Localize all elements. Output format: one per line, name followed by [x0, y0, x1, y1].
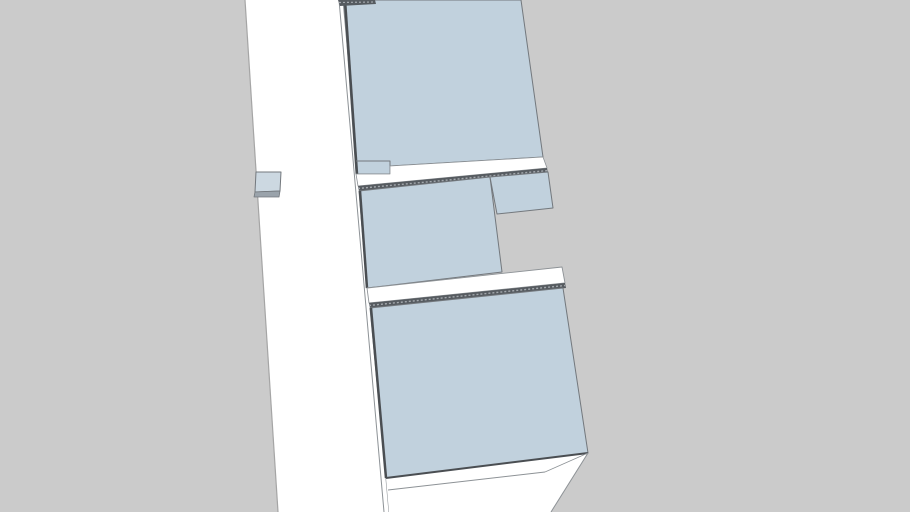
middle-glass-panel[interactable] — [359, 177, 502, 288]
middle-glass-panel-extension[interactable] — [490, 172, 553, 214]
top-glass-panel[interactable] — [344, 0, 543, 174]
bottom-glass-panel[interactable] — [370, 288, 588, 478]
viewport-canvas[interactable] — [0, 0, 910, 512]
left-tab-bottom-shade — [254, 191, 280, 197]
3d-model-viewport[interactable] — [0, 0, 910, 512]
left-tab-face[interactable] — [255, 172, 281, 192]
